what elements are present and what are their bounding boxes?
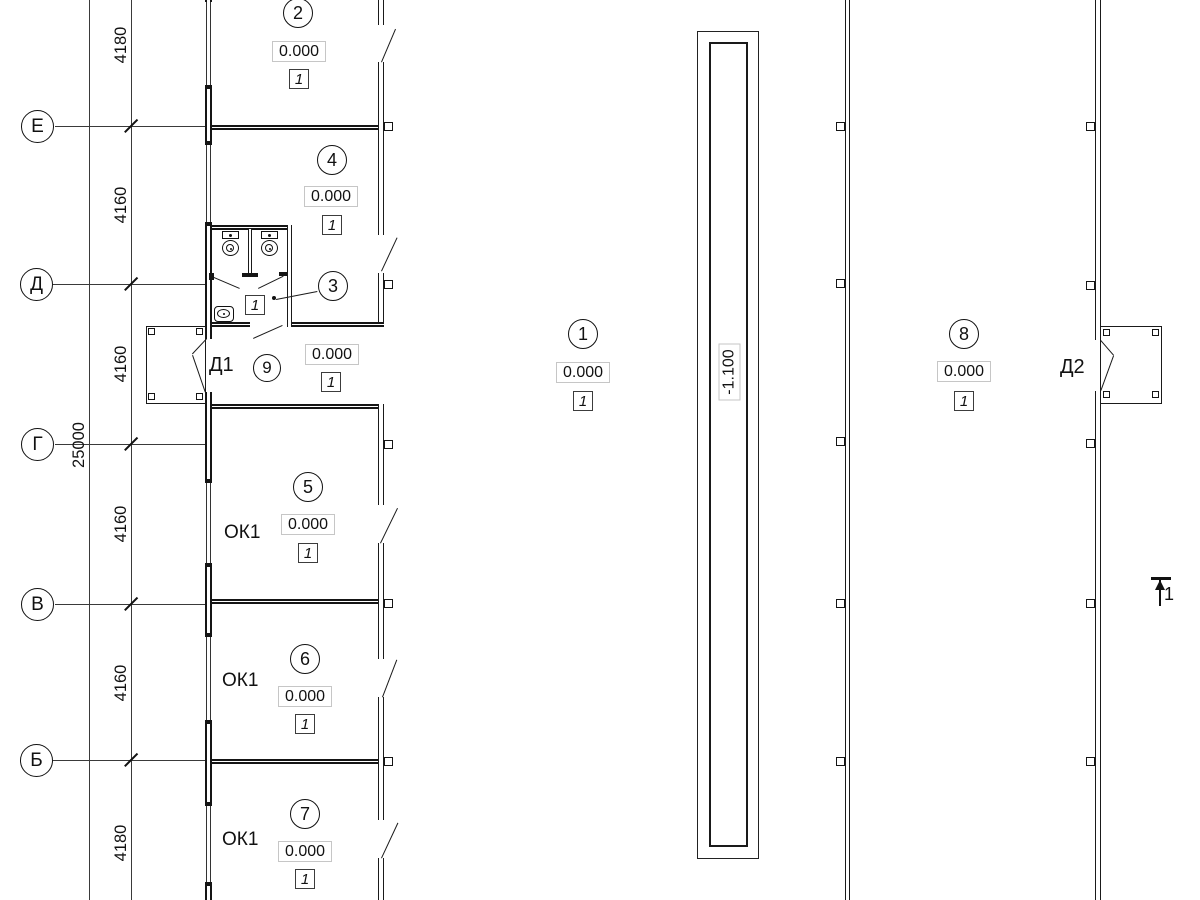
- finish-box: 1: [322, 215, 342, 235]
- window-symbol: [206, 483, 211, 563]
- middle-wall: [845, 0, 850, 900]
- finish-box: 1: [573, 391, 593, 411]
- wall-tab: [384, 599, 393, 608]
- wall-segment: [378, 858, 384, 900]
- dim-4160: 4160: [111, 484, 131, 564]
- wall-tab: [384, 280, 393, 289]
- window-tag-ok1: ОК1: [222, 670, 258, 692]
- porch-pad: [148, 328, 155, 335]
- pit-elevation-box: -1.100: [719, 344, 741, 401]
- wall-tab: [1086, 439, 1095, 448]
- leader-line: [276, 291, 317, 300]
- wc-bottom-wall: [212, 322, 250, 327]
- finish-box: 1: [298, 543, 318, 563]
- door-swing-room5: [380, 508, 398, 543]
- dim-4160: 4160: [111, 324, 131, 404]
- room-number: 8: [959, 324, 969, 345]
- elevation-value: 0.000: [285, 688, 325, 706]
- finish-value: 1: [960, 393, 968, 410]
- finish-value: 1: [304, 545, 312, 562]
- room-bubble-5: 5: [293, 472, 323, 502]
- window-cap: [205, 222, 212, 226]
- porch-pad: [1152, 329, 1159, 336]
- dim-4180-top: 4180: [111, 5, 131, 85]
- window-tag-ok1: ОК1: [222, 829, 258, 851]
- dimension-line-total: [89, 0, 90, 900]
- elevation-box: 0.000: [937, 361, 991, 382]
- porch-pad: [148, 393, 155, 400]
- room-bubble-6: 6: [290, 644, 320, 674]
- finish-value: 1: [301, 716, 309, 733]
- room3-bottom-wall: [287, 322, 384, 327]
- porch-pad: [196, 393, 203, 400]
- elevation-box: 0.000: [278, 686, 332, 707]
- axis-label: Д: [30, 274, 43, 296]
- room-bubble-4: 4: [317, 145, 347, 175]
- finish-value: 1: [579, 393, 587, 410]
- axis-label: В: [31, 594, 44, 616]
- door-swing-room7: [381, 823, 398, 859]
- porch-pad: [1152, 391, 1159, 398]
- axis-label: Е: [31, 116, 44, 138]
- room-number: 2: [293, 3, 303, 24]
- partition-room6-room7: [212, 759, 378, 764]
- room-bubble-3: 3: [318, 271, 348, 301]
- finish-box: 1: [954, 391, 974, 411]
- window-symbol: [206, 145, 211, 222]
- room-number: 9: [262, 358, 271, 378]
- elevation-box: 0.000: [304, 186, 358, 207]
- right-wall-lower: [1095, 391, 1101, 900]
- wall-tab: [836, 599, 845, 608]
- elevation-box: 0.000: [305, 344, 359, 365]
- finish-box-wc: 1: [245, 295, 265, 315]
- door-swing-room2: [381, 29, 396, 63]
- window-cap: [205, 802, 212, 806]
- wall-tab: [384, 757, 393, 766]
- finish-value: 1: [327, 374, 335, 391]
- left-exterior-wall: [205, 0, 212, 900]
- window-cap: [205, 85, 212, 89]
- room-number: 3: [328, 276, 338, 297]
- wall-tab: [384, 122, 393, 131]
- axis-label: Б: [30, 750, 42, 772]
- room-bubble-1: 1: [568, 319, 598, 349]
- wall-tab: [1086, 281, 1095, 290]
- wall-tab: [836, 757, 845, 766]
- elevation-box: 0.000: [278, 841, 332, 862]
- window-symbol: [206, 806, 211, 882]
- pit-elevation-value: -1.100: [721, 349, 739, 394]
- axis-bubble-b: Б: [20, 744, 53, 777]
- window-cap: [205, 720, 212, 724]
- room-number: 5: [303, 477, 313, 498]
- wall-tab: [1086, 757, 1095, 766]
- door-swing-room6: [382, 660, 397, 698]
- elevation-box: 0.000: [556, 362, 610, 383]
- elevation-value: 0.000: [311, 188, 351, 206]
- room-bubble-2: 2: [283, 0, 313, 28]
- porch-pad: [196, 328, 203, 335]
- elevation-value: 0.000: [944, 363, 984, 381]
- wall-tab: [836, 122, 845, 131]
- partition-room5-room6: [212, 599, 378, 604]
- axis-line-e: [55, 126, 210, 127]
- partition-room2-room4: [212, 125, 378, 130]
- finish-box: 1: [321, 372, 341, 392]
- room-bubble-8: 8: [949, 319, 979, 349]
- axis-bubble-v: В: [21, 588, 54, 621]
- wall-tab: [836, 279, 845, 288]
- finish-box: 1: [295, 714, 315, 734]
- stall-door-swing-right: [258, 276, 284, 289]
- axis-label: Г: [32, 434, 42, 456]
- dim-4160: 4160: [111, 643, 131, 723]
- room-number: 1: [578, 324, 588, 345]
- window-cap: [205, 882, 212, 886]
- wc-top-wall: [212, 225, 292, 230]
- leader-dot: [272, 296, 276, 300]
- elevation-box: 0.000: [272, 41, 326, 62]
- elevation-value: 0.000: [279, 43, 319, 61]
- room-number: 7: [300, 804, 310, 825]
- stall-partition-base: [242, 273, 258, 277]
- room-number: 6: [300, 649, 310, 670]
- window-cap: [205, 141, 212, 145]
- finish-value: 1: [251, 297, 259, 314]
- window-symbol: [206, 2, 211, 85]
- axis-bubble-d: Д: [20, 268, 53, 301]
- stall-door-swing-left: [214, 277, 240, 289]
- wc-entry-door-swing: [253, 325, 283, 339]
- dim-4160: 4160: [111, 165, 131, 245]
- dimension-line-segments: [131, 0, 132, 900]
- elevation-value: 0.000: [285, 843, 325, 861]
- corridor-bottom-wall: [212, 404, 378, 409]
- wall-tab: [1086, 599, 1095, 608]
- wall-segment: [378, 0, 384, 25]
- door-label-d1: Д1: [209, 354, 234, 377]
- finish-value: 1: [301, 871, 309, 888]
- window-cap: [205, 479, 212, 483]
- porch-pad: [1103, 329, 1110, 336]
- door-swing-room4: [381, 237, 398, 271]
- dim-4180-bottom: 4180: [111, 803, 131, 883]
- axis-line-v: [55, 604, 210, 605]
- axis-bubble-e: Е: [21, 110, 54, 143]
- window-cap: [205, 633, 212, 637]
- dim-25000: 25000: [69, 405, 89, 485]
- window-cap: [205, 563, 212, 567]
- door-label-d2: Д2: [1060, 356, 1085, 379]
- room-bubble-9: 9: [253, 354, 281, 382]
- window-tag-ok1: ОК1: [224, 522, 260, 544]
- wc-right-wall: [287, 225, 292, 327]
- elevation-value: 0.000: [563, 364, 603, 382]
- right-wall-upper: [1095, 0, 1101, 340]
- elevation-value: 0.000: [288, 516, 328, 534]
- finish-box: 1: [295, 869, 315, 889]
- wall-tab: [836, 437, 845, 446]
- elevation-value: 0.000: [312, 346, 352, 364]
- sink-icon: [214, 306, 234, 322]
- porch-pad: [1103, 391, 1110, 398]
- wc-stall-partition: [248, 229, 252, 273]
- axis-bubble-g: Г: [21, 428, 54, 461]
- finish-value: 1: [295, 71, 303, 88]
- elevation-box: 0.000: [281, 514, 335, 535]
- wall-tab: [1086, 122, 1095, 131]
- wall-segment: [378, 404, 384, 505]
- section-mark-label: 1: [1164, 584, 1174, 605]
- room-number: 4: [327, 150, 337, 171]
- pit-inner-outline: [709, 42, 748, 847]
- wall-tab: [384, 440, 393, 449]
- finish-value: 1: [328, 217, 336, 234]
- wall-segment: [378, 62, 384, 235]
- room-bubble-7: 7: [290, 799, 320, 829]
- window-symbol: [206, 637, 211, 720]
- floor-plan-drawing: Е Д Г В Б 4180 4160 4160 4160 4160 4180 …: [0, 0, 1200, 900]
- finish-box: 1: [289, 69, 309, 89]
